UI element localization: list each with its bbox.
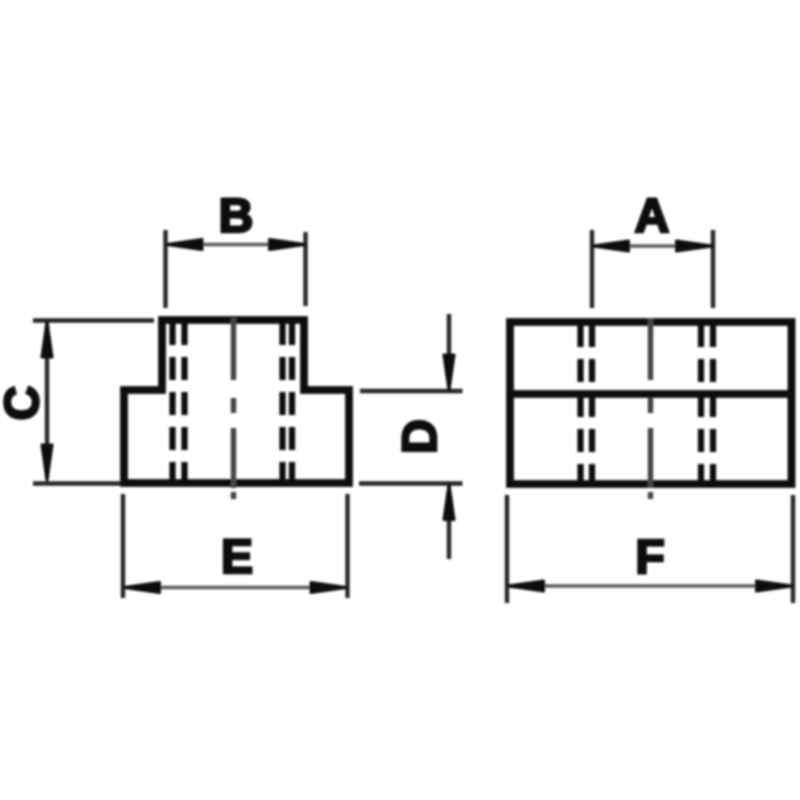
svg-text:B: B <box>219 190 254 243</box>
svg-text:F: F <box>635 531 664 584</box>
svg-text:E: E <box>221 531 253 584</box>
svg-text:A: A <box>635 190 670 243</box>
svg-text:C: C <box>0 386 49 421</box>
svg-text:D: D <box>394 419 447 454</box>
